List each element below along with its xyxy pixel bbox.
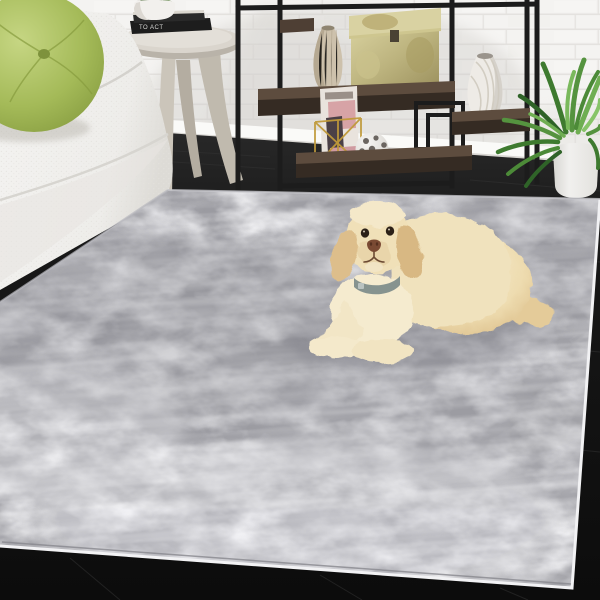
book-spine-text: TO ACT [139, 25, 164, 31]
scene-canvas: TO ACT [0, 0, 600, 600]
pillow-button [38, 49, 50, 59]
dog-eye [386, 226, 394, 235]
potted-plant-small [134, 0, 176, 20]
box-clasp [390, 30, 399, 42]
dog-topknot [350, 201, 404, 227]
living-room-scene: TO ACT [0, 0, 600, 600]
collar-buckle [358, 283, 364, 289]
dog-paw [351, 339, 413, 363]
dog-eye [361, 228, 369, 237]
decorative-box [349, 8, 441, 92]
